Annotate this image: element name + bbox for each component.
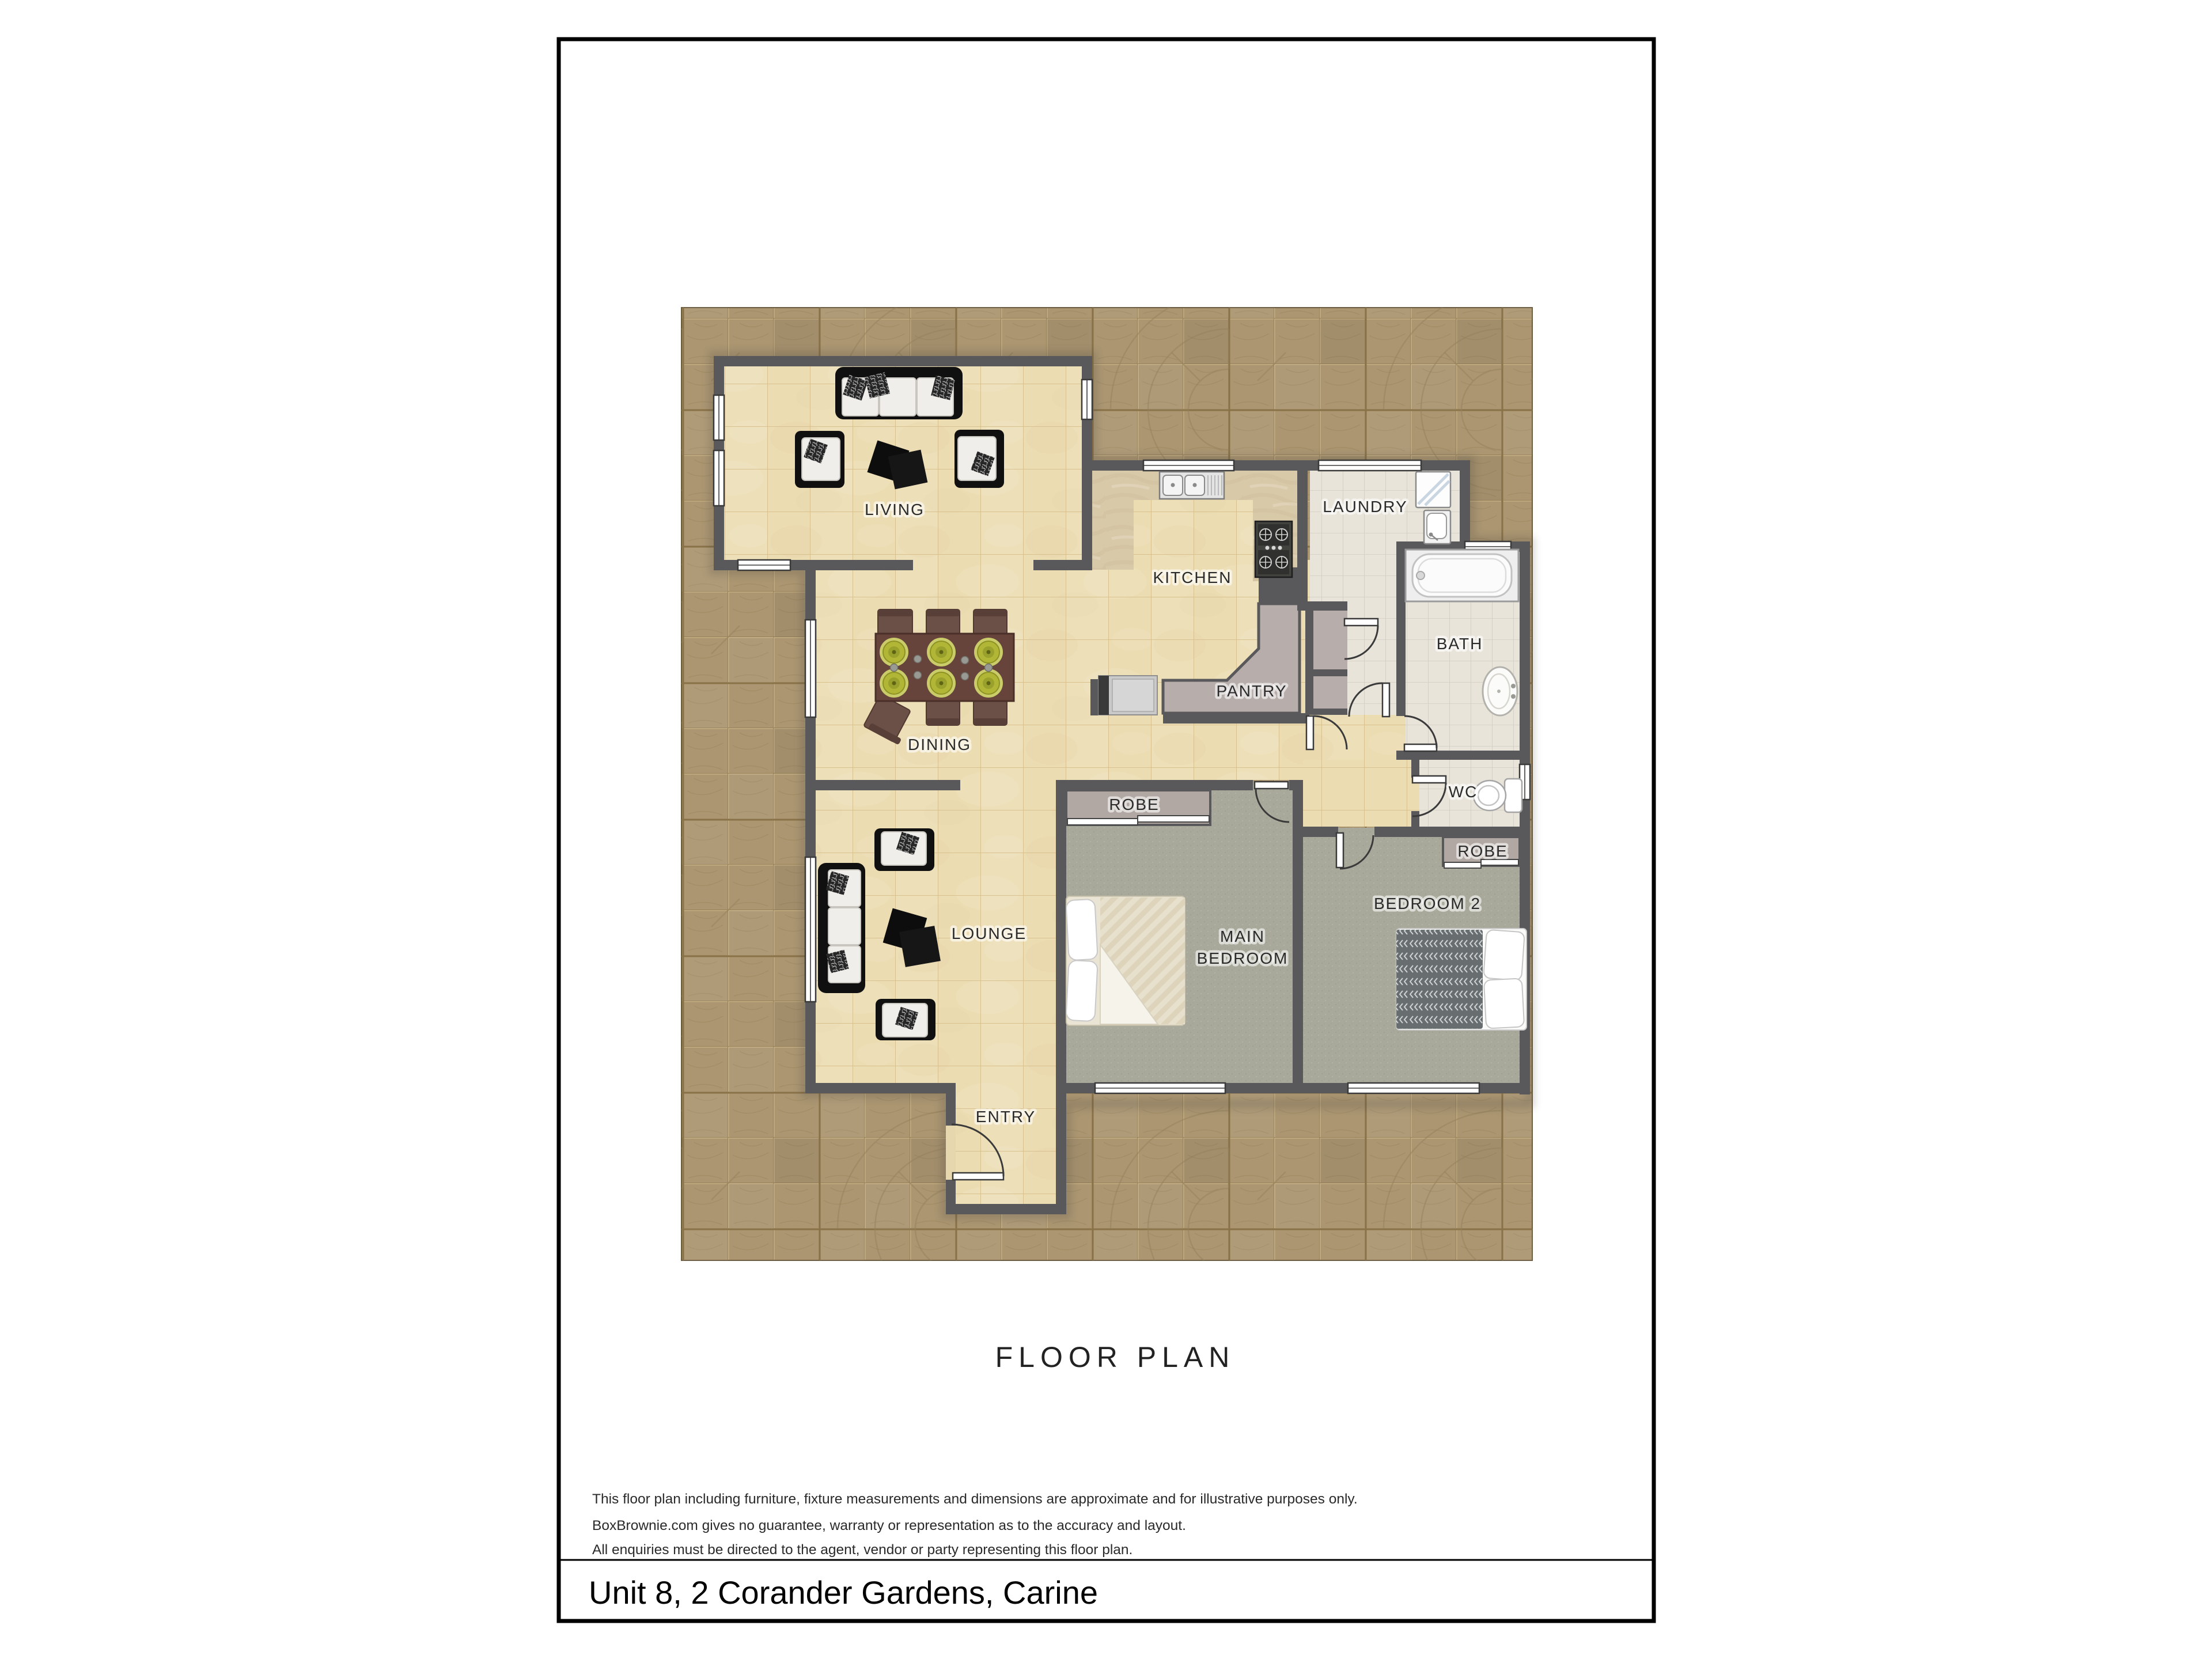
svg-text:ROBE: ROBE <box>1457 842 1508 860</box>
svg-text:BATH: BATH <box>1437 635 1483 653</box>
svg-text:This floor plan including furn: This floor plan including furniture, fix… <box>592 1491 1358 1507</box>
svg-text:BEDROOM 2: BEDROOM 2 <box>1374 895 1481 912</box>
svg-text:FLOOR PLAN: FLOOR PLAN <box>995 1341 1236 1373</box>
svg-text:Unit 8, 2 Corander Gardens, Ca: Unit 8, 2 Corander Gardens, Carine <box>589 1574 1098 1611</box>
svg-text:BEDROOM: BEDROOM <box>1197 949 1289 967</box>
svg-text:All enquiries must be directed: All enquiries must be directed to the ag… <box>592 1542 1132 1558</box>
svg-text:ROBE: ROBE <box>1109 796 1159 813</box>
svg-text:PANTRY: PANTRY <box>1217 682 1287 700</box>
svg-text:BoxBrownie.com gives no guaran: BoxBrownie.com gives no guarantee, warra… <box>592 1518 1186 1533</box>
svg-text:ENTRY: ENTRY <box>976 1108 1036 1126</box>
svg-text:LOUNGE: LOUNGE <box>952 925 1027 942</box>
svg-text:MAIN: MAIN <box>1220 927 1265 945</box>
svg-text:LIVING: LIVING <box>865 501 925 518</box>
svg-text:LAUNDRY: LAUNDRY <box>1323 498 1407 516</box>
svg-text:WC: WC <box>1449 783 1478 801</box>
svg-text:DINING: DINING <box>908 736 971 753</box>
svg-text:KITCHEN: KITCHEN <box>1153 569 1232 586</box>
